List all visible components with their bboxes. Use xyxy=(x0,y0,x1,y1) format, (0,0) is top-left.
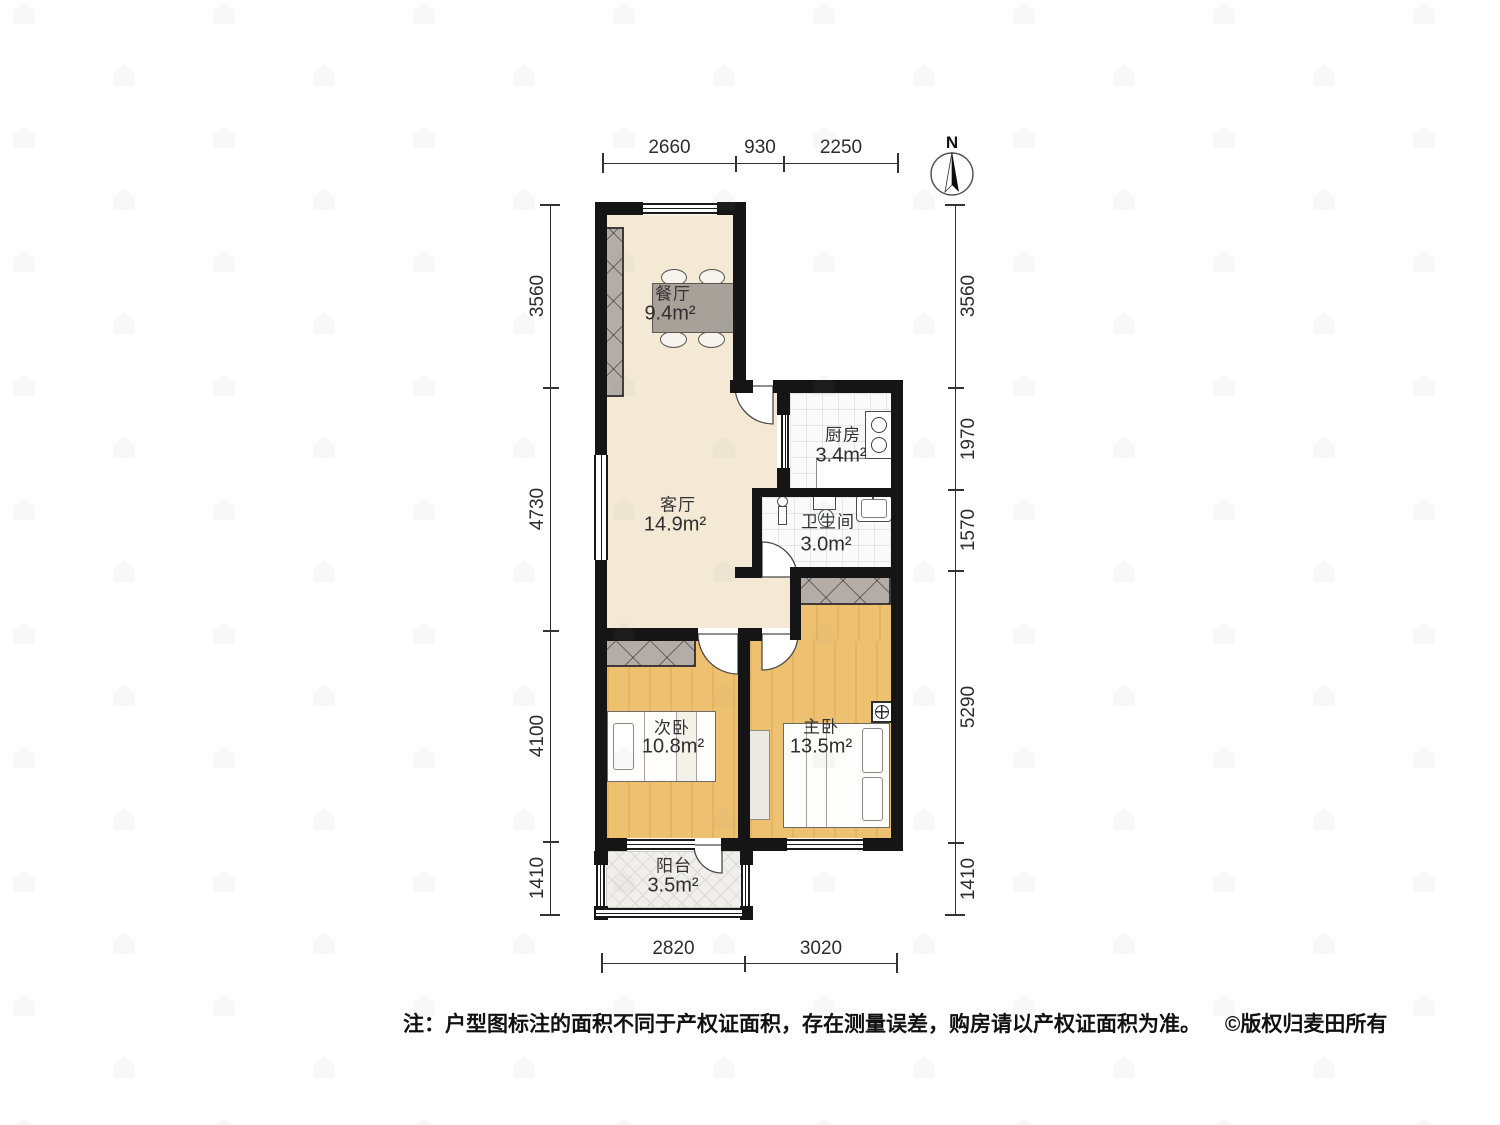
room-area-living: 14.9m² xyxy=(644,514,706,537)
room-area-kitchen: 3.4m² xyxy=(815,445,866,468)
dim-label: 1570 xyxy=(958,509,980,551)
wall-segment xyxy=(595,838,627,851)
dim-label: 5290 xyxy=(958,686,980,728)
wall-segment xyxy=(595,628,698,641)
copyright-text: ©版权归麦田所有 xyxy=(1225,1013,1387,1036)
wall-segment xyxy=(891,380,903,851)
dim-label: 2660 xyxy=(603,137,736,159)
dimension-line-left xyxy=(550,205,551,915)
dim-tick xyxy=(948,387,964,389)
dim-label: 3560 xyxy=(958,275,980,317)
wall-segment xyxy=(735,567,762,578)
wall-segment xyxy=(790,567,801,640)
dim-label: 1410 xyxy=(958,858,980,900)
wall-segment xyxy=(773,380,903,393)
dim-label: 2820 xyxy=(602,938,745,960)
dim-tick xyxy=(945,914,965,916)
room-label-living: 客厅 xyxy=(660,491,696,516)
dim-tick xyxy=(543,630,559,632)
dim-label: 2250 xyxy=(784,137,898,159)
dim-label: 4100 xyxy=(527,715,549,757)
wall-segment xyxy=(790,567,891,578)
second-bedroom-door-arc xyxy=(698,634,738,674)
dim-tick xyxy=(948,489,964,491)
master-bedroom-window xyxy=(787,839,863,850)
wall-segment xyxy=(752,488,891,497)
dim-label: 4730 xyxy=(527,488,549,530)
dim-tick xyxy=(948,842,964,844)
balcony-rail-bottom xyxy=(596,908,742,918)
wall-segment xyxy=(738,628,750,851)
dimension-line-right xyxy=(955,205,956,915)
floorplan-canvas: 餐厅 9.4m² 厨房 3.4m² 客厅 14.9m² 卫生间 3.0m² 次卧… xyxy=(0,0,1500,1125)
dim-label: 1410 xyxy=(527,857,549,899)
balcony-corner-post xyxy=(594,851,608,865)
dim-tick xyxy=(543,841,559,843)
wall-segment xyxy=(721,838,738,851)
room-label-bathroom: 卫生间 xyxy=(801,508,855,533)
wall-segment xyxy=(730,380,753,393)
dim-label: 1970 xyxy=(958,418,980,460)
wall-segment xyxy=(777,393,790,415)
room-area-second-bedroom: 10.8m² xyxy=(642,736,704,759)
dim-label: 930 xyxy=(736,137,784,159)
wall-segment xyxy=(863,838,903,851)
second-bedroom-window xyxy=(627,839,695,850)
living-room-window xyxy=(594,455,608,560)
compass-north-label: N xyxy=(946,133,958,152)
wall-segment xyxy=(595,560,607,852)
room-area-master-bedroom: 13.5m² xyxy=(790,736,852,759)
balcony-door-arc xyxy=(694,845,722,873)
wall-segment xyxy=(750,838,787,851)
room-label-master-bedroom: 主卧 xyxy=(803,713,839,738)
room-area-dining: 9.4m² xyxy=(644,303,695,326)
room-area-balcony: 3.5m² xyxy=(647,875,698,898)
room-area-bathroom: 3.0m² xyxy=(800,534,851,557)
dim-tick xyxy=(540,204,560,206)
dim-tick xyxy=(540,914,560,916)
dimension-line-bottom xyxy=(602,963,897,964)
dim-label: 3020 xyxy=(745,938,897,960)
compass-icon: N xyxy=(922,126,986,210)
wall-segment xyxy=(733,202,746,393)
dimension-line-top xyxy=(603,163,898,164)
dim-tick xyxy=(948,570,964,572)
balcony-rail-left xyxy=(596,865,605,906)
balcony-rail-right xyxy=(741,865,750,906)
disclaimer-text: 注：户型图标注的面积不同于产权证面积，存在测量误差，购房请以产权证面积为准。 xyxy=(403,1013,1201,1036)
dim-label: 3560 xyxy=(527,275,549,317)
kitchen-sliding-door xyxy=(781,415,789,468)
dim-tick xyxy=(543,387,559,389)
wall-segment xyxy=(595,202,607,455)
balcony-corner-post xyxy=(740,851,753,865)
wall-segment xyxy=(752,488,762,572)
disclaimer-note: 注：户型图标注的面积不同于产权证面积，存在测量误差，购房请以产权证面积为准。 ©… xyxy=(403,1008,1387,1038)
room-label-kitchen: 厨房 xyxy=(825,421,861,446)
room-label-dining: 餐厅 xyxy=(655,280,691,305)
dining-window xyxy=(643,203,717,214)
room-label-balcony: 阳台 xyxy=(656,852,692,877)
